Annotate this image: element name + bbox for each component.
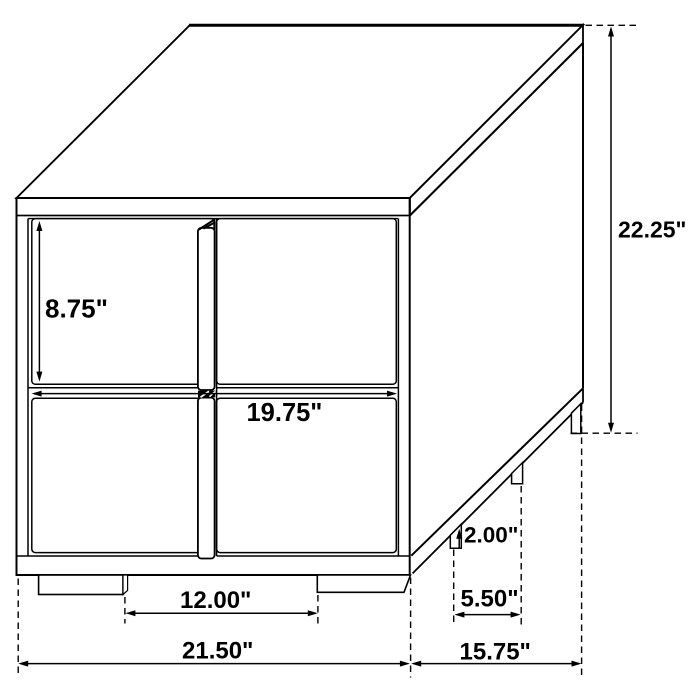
svg-text:19.75": 19.75" [247,399,323,427]
svg-text:22.25": 22.25" [618,217,686,243]
svg-text:15.75": 15.75" [460,639,531,666]
svg-text:5.50": 5.50" [461,585,519,612]
svg-text:12.00": 12.00" [180,587,251,614]
svg-text:8.75": 8.75" [45,294,108,324]
svg-text:21.50": 21.50" [182,638,253,665]
svg-text:2.00": 2.00" [464,523,518,548]
